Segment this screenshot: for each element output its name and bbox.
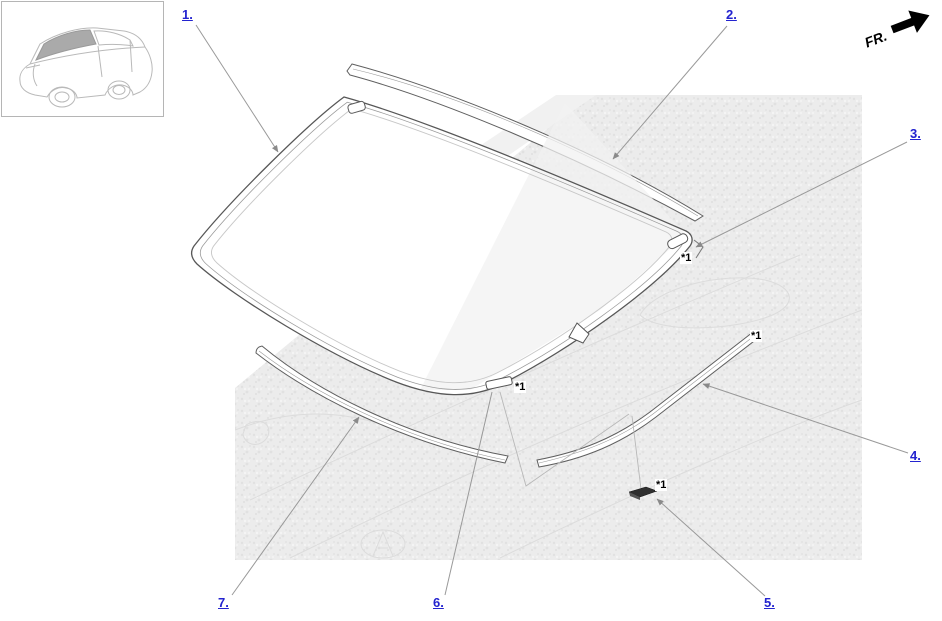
front-direction-indicator: FR. [856,0,942,56]
front-label: FR. [862,28,889,51]
note-marker-5: *1 [655,479,667,491]
front-arrow-icon [908,4,933,33]
diagram-canvas [0,0,942,621]
callout-2[interactable]: 2. [726,8,737,22]
callout-1[interactable]: 1. [182,8,193,22]
callout-5[interactable]: 5. [764,596,775,610]
callout-6[interactable]: 6. [433,596,444,610]
callout-7[interactable]: 7. [218,596,229,610]
parts-diagram-page: 1. 2. 3. 4. 5. 6. 7. *1 *1 *1 *1 FR. [0,0,942,621]
note-marker-4: *1 [750,330,762,342]
callout-4[interactable]: 4. [910,449,921,463]
leader-line-1 [196,25,278,152]
callout-3[interactable]: 3. [910,127,921,141]
note-marker-3: *1 [680,252,692,264]
note-marker-6: *1 [514,381,526,393]
